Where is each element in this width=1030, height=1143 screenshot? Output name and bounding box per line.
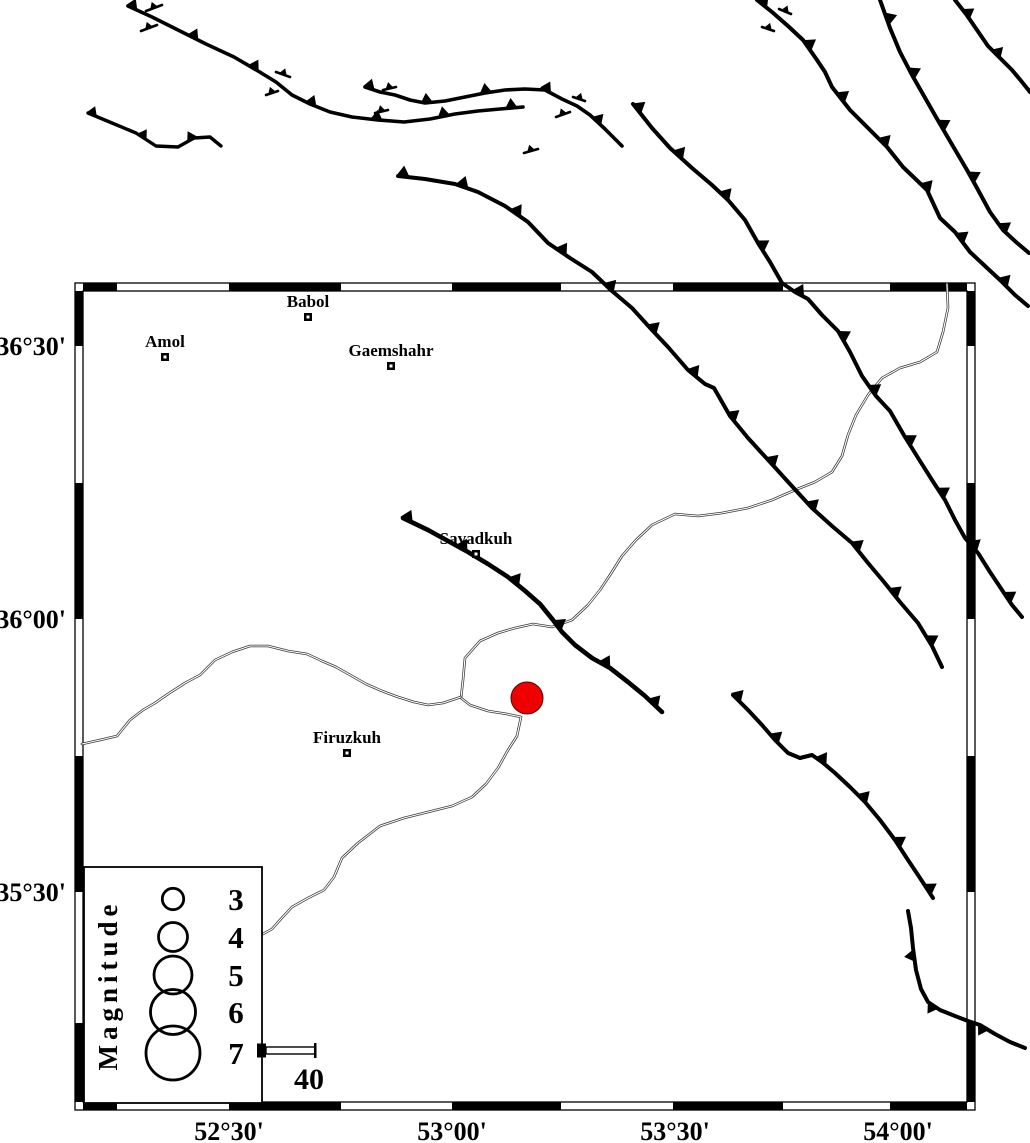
city-label: Amol <box>145 332 185 351</box>
frame-tick-band <box>83 283 117 291</box>
legend-magnitude-value: 4 <box>228 920 244 955</box>
frame-tick-band <box>452 1102 561 1110</box>
city-marker-center <box>307 316 310 319</box>
legend-magnitude-value: 7 <box>228 1036 244 1071</box>
longitude-tick-label: 53°00' <box>417 1117 487 1143</box>
frame-tick-band <box>967 756 975 892</box>
city-marker-center <box>390 365 393 368</box>
seismotectonic-map-page: BabolAmolGaemshahrSavadkuhFiruzkuh36°30'… <box>0 0 1030 1143</box>
frame-tick-band <box>673 283 783 291</box>
city-label: Babol <box>287 292 330 311</box>
scale-bar-right-tick <box>314 1043 317 1058</box>
frame-tick-band <box>75 1023 83 1102</box>
longitude-tick-label: 53°30' <box>640 1117 710 1143</box>
city-marker-center <box>346 752 349 755</box>
city-label: Gaemshahr <box>349 341 434 360</box>
city-marker-center <box>475 553 478 556</box>
city-label: Savadkuh <box>440 529 513 548</box>
frame-tick-band <box>673 1102 783 1110</box>
legend-title: Magnitude <box>93 899 123 1070</box>
legend-magnitude-value: 3 <box>228 882 244 917</box>
frame-tick-band <box>452 283 561 291</box>
frame-tick-band <box>75 483 83 619</box>
latitude-tick-label: 35°30' <box>0 878 66 907</box>
legend-magnitude-value: 6 <box>228 995 244 1030</box>
earthquake-epicenter-marker <box>511 682 543 714</box>
legend-magnitude-value: 5 <box>228 958 244 993</box>
latitude-tick-label: 36°30' <box>0 332 66 361</box>
frame-tick-band <box>967 291 975 346</box>
frame-tick-band <box>890 283 967 291</box>
longitude-tick-label: 52°30' <box>194 1117 264 1143</box>
scale-bar-label: 40 <box>294 1063 324 1096</box>
city-label: Firuzkuh <box>313 728 382 747</box>
frame-tick-band <box>890 1102 967 1110</box>
city-marker-center <box>164 356 167 359</box>
scale-bar-left-block <box>257 1044 266 1058</box>
frame-tick-band <box>75 756 83 892</box>
seismotectonic-map: BabolAmolGaemshahrSavadkuhFiruzkuh36°30'… <box>0 0 1030 1143</box>
frame-tick-band <box>75 291 83 346</box>
latitude-tick-label: 36°00' <box>0 605 66 634</box>
frame-tick-band <box>229 283 341 291</box>
longitude-tick-label: 54°00' <box>863 1117 933 1143</box>
frame-tick-band <box>967 1023 975 1102</box>
magnitude-legend: Magnitude34567 <box>84 867 262 1103</box>
